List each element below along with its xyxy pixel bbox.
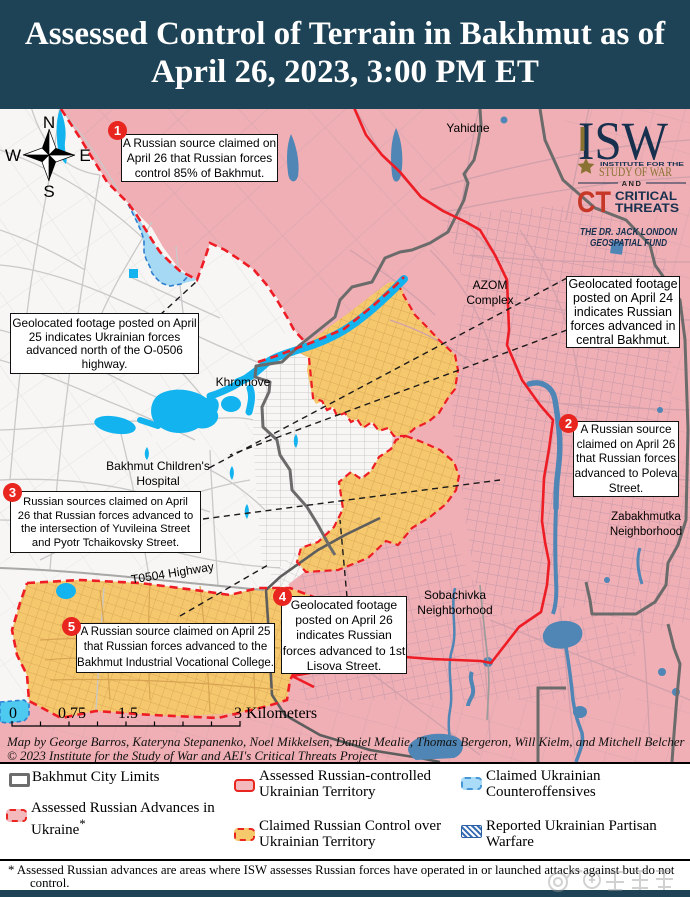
- svg-text:AND: AND: [622, 179, 643, 188]
- svg-text:THREATS: THREATS: [615, 203, 679, 215]
- svg-text:CRITICAL: CRITICAL: [615, 191, 677, 203]
- svg-text:CT: CT: [577, 186, 611, 219]
- svg-text:E: E: [79, 146, 90, 165]
- svg-text:W: W: [5, 146, 21, 165]
- svg-text:S: S: [43, 182, 54, 201]
- svg-text:1.5: 1.5: [118, 705, 138, 722]
- svg-text:N: N: [43, 113, 55, 132]
- svg-text:0.75: 0.75: [58, 705, 86, 722]
- svg-text:STUDY OF WAR: STUDY OF WAR: [599, 164, 672, 179]
- svg-text:0: 0: [9, 705, 17, 722]
- svg-text:3 Kilometers: 3 Kilometers: [234, 705, 317, 722]
- svg-text:GEOSPATIAL FUND: GEOSPATIAL FUND: [590, 237, 667, 249]
